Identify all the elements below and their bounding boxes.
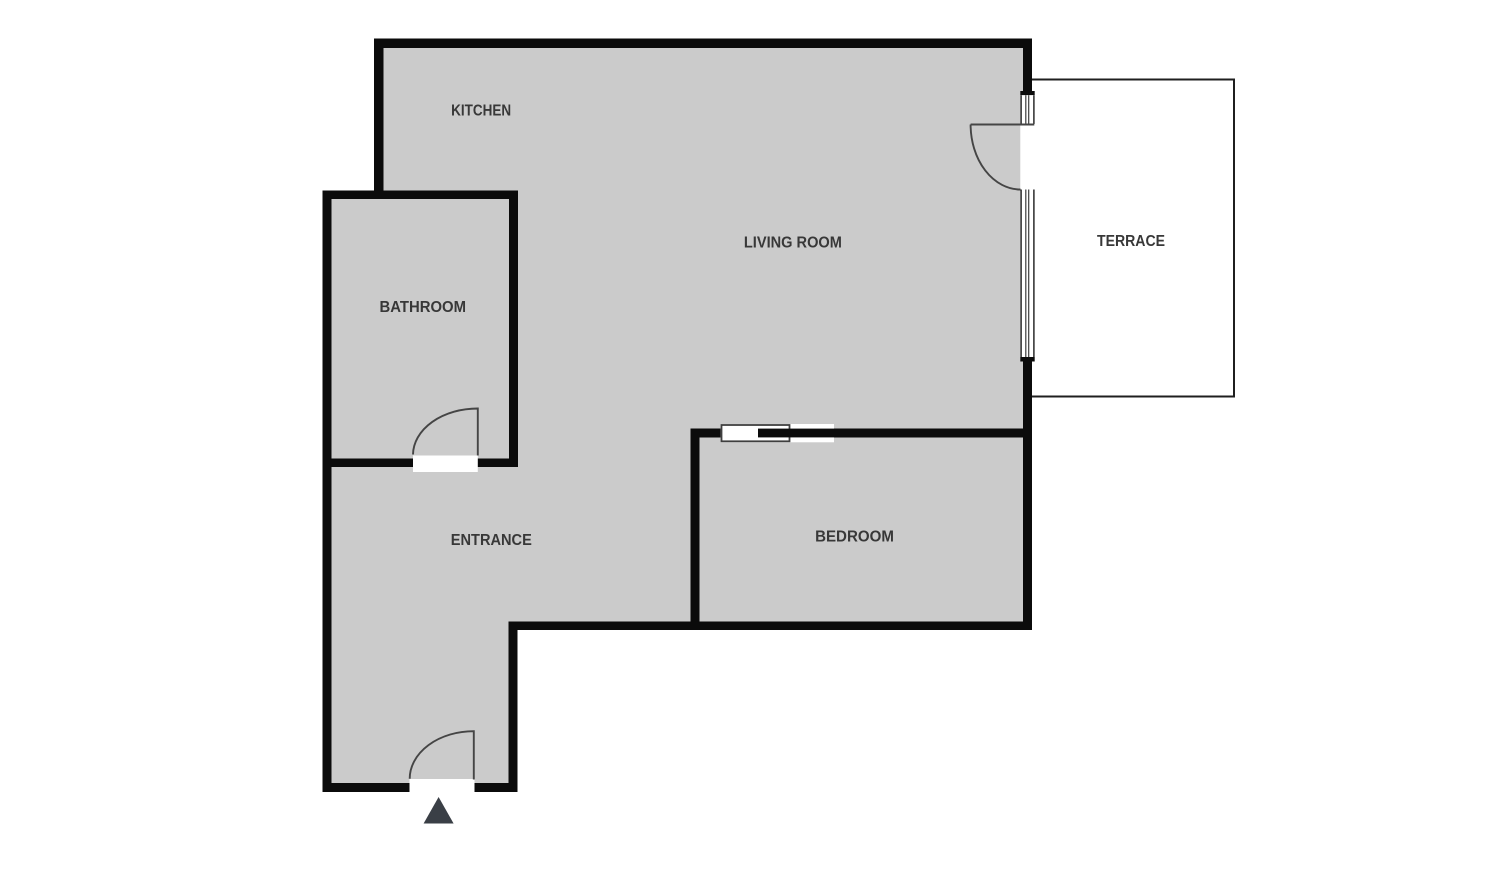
svg-text:BATHROOM: BATHROOM: [380, 299, 467, 316]
svg-text:ENTRANCE: ENTRANCE: [451, 532, 532, 549]
svg-text:LIVING ROOM: LIVING ROOM: [744, 234, 842, 251]
svg-text:TERRACE: TERRACE: [1097, 233, 1165, 250]
svg-text:BEDROOM: BEDROOM: [815, 529, 894, 546]
svg-text:KITCHEN: KITCHEN: [451, 102, 511, 119]
